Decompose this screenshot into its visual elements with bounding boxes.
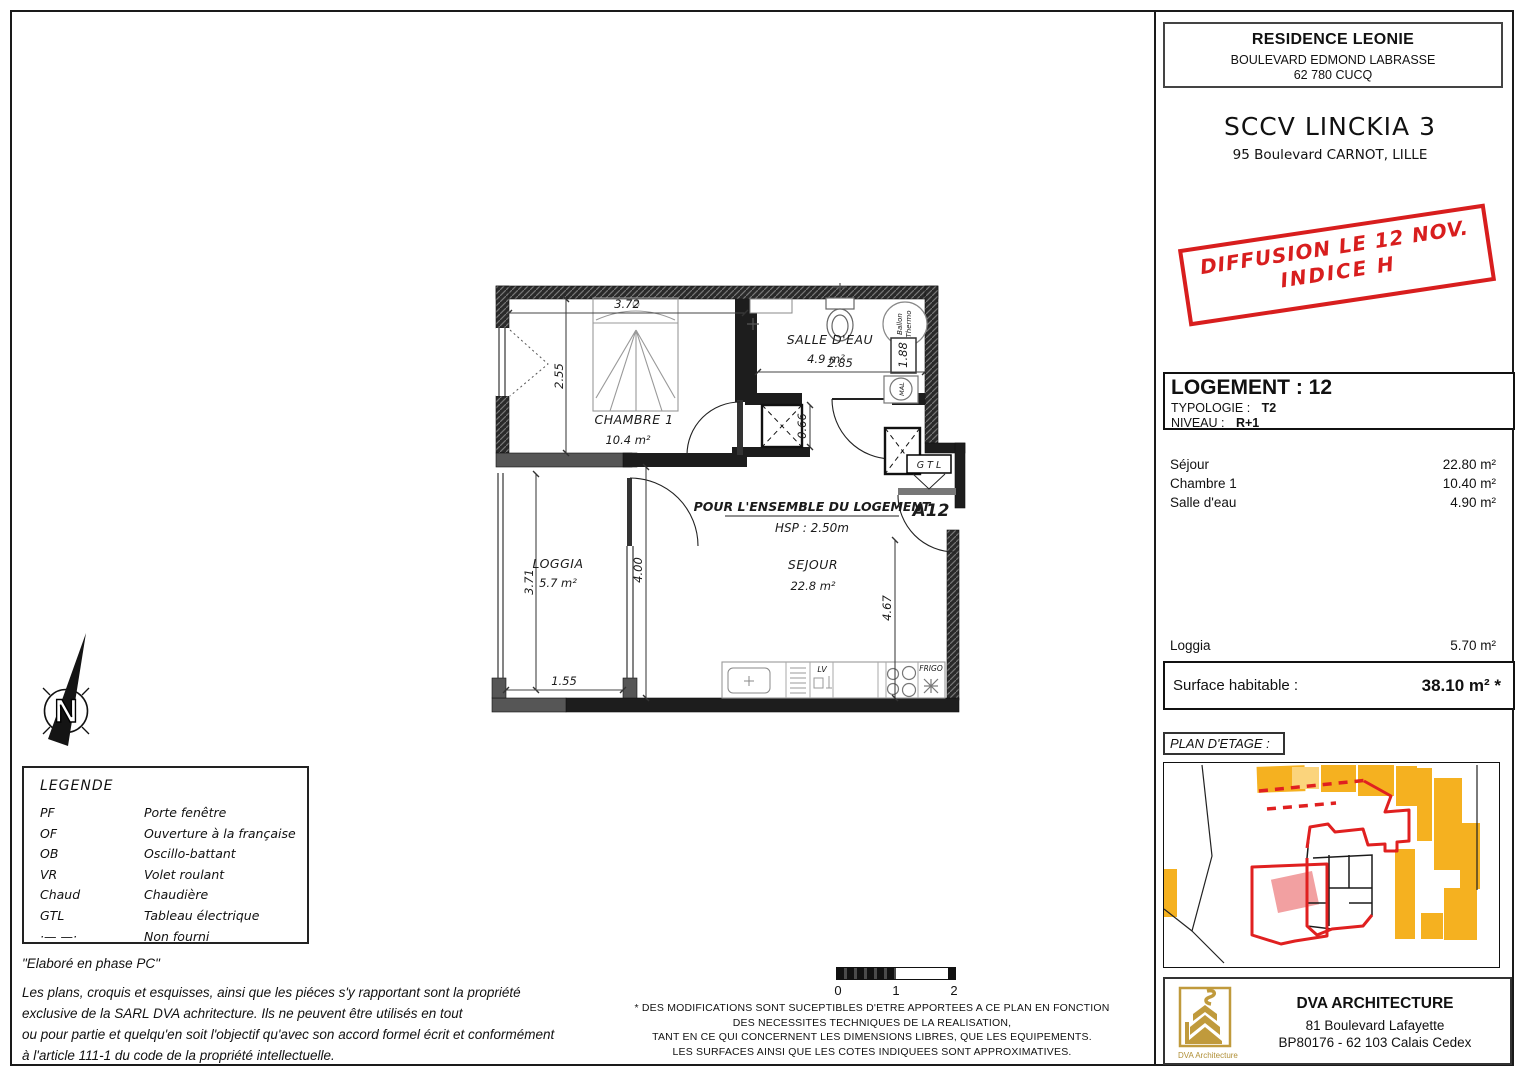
typologie-value: T2: [1262, 401, 1277, 415]
dishwasher-label: LV: [817, 665, 827, 674]
scale-tick-1: 1: [886, 983, 906, 998]
loggia-door-arc: [630, 478, 698, 546]
legend-row: GTL Tableau électrique: [24, 906, 307, 927]
room-areas-table: Séjour 22.80 m² Chambre 1 10.40 m² Salle…: [1170, 455, 1496, 512]
modifications-disclaimer: * DES MODIFICATIONS SONT SUCEPTIBLES D'E…: [612, 1001, 1132, 1059]
room-label: Chambre 1: [1170, 474, 1237, 493]
floor-location-map: [1163, 762, 1500, 968]
room-label: Séjour: [1170, 455, 1209, 474]
legend-box: LEGENDE PF Porte fenêtre OF Ouverture à …: [22, 766, 309, 944]
plan-etage-label: PLAN D'ETAGE :: [1163, 732, 1285, 755]
panel-divider: [1154, 10, 1156, 1066]
logement-title: LOGEMENT : 12: [1171, 376, 1513, 400]
table-row: Salle d'eau 4.90 m²: [1170, 493, 1496, 512]
legend-abbr: VR: [24, 865, 144, 886]
legend-label: Tableau électrique: [144, 906, 259, 927]
copyright-line: exclusive de la SARL DVA achritecture. I…: [22, 1003, 554, 1024]
svg-text:G T L: G T L: [917, 460, 942, 471]
room-area-sejour: 22.8 m²: [790, 579, 835, 593]
residence-name: RESIDENCE LEONIE: [1165, 31, 1501, 49]
legend-label: Oscillo-battant: [144, 844, 236, 865]
scale-bar-empty: [896, 968, 948, 979]
room-label: Loggia: [1170, 638, 1211, 653]
architect-address-1: 81 Boulevard Lafayette: [1249, 1018, 1501, 1033]
loggia-area-row: Loggia 5.70 m²: [1170, 638, 1496, 653]
svg-text:MAL: MAL: [898, 382, 906, 396]
developer-address: 95 Boulevard CARNOT, LILLE: [1156, 147, 1504, 163]
legend-row: VR Volet roulant: [24, 865, 307, 886]
developer-name: SCCV LINCKIA 3: [1156, 112, 1504, 141]
room-area: 4.90 m²: [1450, 493, 1496, 512]
copyright-line: à l'article 111-1 du code de la propriét…: [22, 1045, 554, 1066]
residence-title-block: RESIDENCE LEONIE BOULEVARD EDMOND LABRAS…: [1163, 22, 1503, 88]
room-area: 22.80 m²: [1443, 455, 1496, 474]
scale-tick-2: 2: [944, 983, 964, 998]
legend-row: PF Porte fenêtre: [24, 803, 307, 824]
svg-text:2.55: 2.55: [552, 363, 566, 389]
room-area-chambre: 10.4 m²: [605, 433, 650, 447]
entry-door-leaf: [898, 488, 956, 495]
legend-title: LEGENDE: [40, 778, 307, 794]
room-area-salle-eau: 4.9 m²: [807, 352, 845, 366]
floorplan-svg: Ballon Thermo 1.88 MAL G T L: [488, 278, 973, 723]
room-label: Salle d'eau: [1170, 493, 1236, 512]
surface-habitable-box: Surface habitable : 38.10 m² *: [1163, 661, 1515, 710]
legend-abbr: OF: [24, 824, 144, 845]
chambre-window: [496, 328, 548, 396]
room-label-chambre: CHAMBRE 1: [594, 412, 673, 427]
disclaimer-line: DES NECESSITES TECHNIQUES DE LA REALISAT…: [612, 1016, 1132, 1031]
legend-abbr: GTL: [24, 906, 144, 927]
plan-notes: POUR L'ENSEMBLE DU LOGEMENT HSP : 2.50m …: [694, 499, 950, 535]
chambre-door-leaf: [737, 400, 743, 455]
surface-label: Surface habitable :: [1173, 677, 1298, 694]
svg-text:4.67: 4.67: [880, 595, 894, 621]
residence-address-1: BOULEVARD EDMOND LABRASSE: [1165, 53, 1501, 67]
bed-icon: [593, 298, 678, 411]
disclaimer-line: * DES MODIFICATIONS SONT SUCEPTIBLES D'E…: [612, 1001, 1132, 1016]
legend-abbr: Chaud: [24, 885, 144, 906]
unit-door-label: A12: [911, 501, 950, 521]
scale-bar: [836, 967, 956, 980]
typologie-label: TYPOLOGIE :: [1171, 401, 1250, 415]
dva-logo-caption: DVA Architecture: [1178, 1051, 1238, 1060]
svg-text:3.71: 3.71: [522, 569, 536, 595]
scale-tick-0: 0: [828, 983, 848, 998]
room-area-loggia: 5.7 m²: [539, 576, 577, 590]
legend-label: Porte fenêtre: [144, 803, 226, 824]
north-compass-icon: N: [28, 630, 148, 755]
legend-row: ·— —· Non fourni: [24, 927, 307, 948]
room-area: 5.70 m²: [1450, 638, 1496, 653]
dimension-lines: 3.72 2.55 2.85 0.66 4.00 4.67 3.71 1.55: [506, 297, 925, 698]
duct-shafts: [762, 405, 920, 474]
room-label-loggia: LOGGIA: [532, 556, 583, 571]
logement-block: LOGEMENT : 12 TYPOLOGIE : T2 NIVEAU : R+…: [1163, 372, 1515, 430]
svg-text:FRIGO: FRIGO: [919, 664, 943, 673]
bath-door-arc: [832, 399, 892, 459]
svg-text:Ballon: Ballon: [896, 313, 904, 335]
architect-contact: DVA ARCHITECTURE 81 Boulevard Lafayette …: [1249, 995, 1501, 1050]
kitchen-counter: LV FRIGO: [722, 662, 945, 698]
washing-machine-icon: MAL: [884, 376, 918, 403]
shower-dim-box: 1.88: [891, 338, 916, 373]
legend-abbr: OB: [24, 844, 144, 865]
legend-label: Ouverture à la française: [144, 824, 296, 845]
legend-label: Chaudière: [144, 885, 208, 906]
room-label-salle-eau: SALLE D'EAU: [787, 332, 873, 347]
architect-address-2: BP80176 - 62 103 Calais Cedex: [1249, 1035, 1501, 1050]
loggia-door-leaf: [627, 478, 632, 546]
niveau-row: NIVEAU : R+1: [1171, 416, 1513, 430]
surface-value: 38.10 m² *: [1422, 676, 1501, 696]
scale-bar-filled: [837, 968, 896, 979]
niveau-label: NIVEAU :: [1171, 416, 1225, 430]
legend-row: OF Ouverture à la française: [24, 824, 307, 845]
legend-row: Chaud Chaudière: [24, 885, 307, 906]
table-row: Séjour 22.80 m²: [1170, 455, 1496, 474]
location-map-svg: [1164, 763, 1498, 966]
svg-text:4.00: 4.00: [631, 557, 645, 583]
disclaimer-line: TANT EN CE QUI CONCERNENT LES DIMENSIONS…: [612, 1030, 1132, 1045]
niveau-value: R+1: [1236, 416, 1259, 430]
architect-block: DVA Architecture DVA ARCHITECTURE 81 Bou…: [1163, 977, 1512, 1065]
legend-abbr: ·— —·: [24, 927, 144, 948]
room-label-sejour: SEJOUR: [788, 557, 838, 572]
copyright-line: Les plans, croquis et esquisses, ainsi q…: [22, 982, 554, 1003]
typologie-row: TYPOLOGIE : T2: [1171, 401, 1513, 415]
plan-sheet: RESIDENCE LEONIE BOULEVARD EDMOND LABRAS…: [0, 0, 1526, 1080]
svg-text:0.66: 0.66: [795, 413, 809, 439]
room-area: 10.40 m²: [1443, 474, 1496, 493]
svg-text:3.72: 3.72: [614, 297, 640, 311]
svg-text:Thermo: Thermo: [905, 311, 913, 338]
residence-address-2: 62 780 CUCQ: [1165, 68, 1501, 82]
gtl-box: G T L: [907, 455, 951, 489]
legend-row: OB Oscillo-battant: [24, 844, 307, 865]
copyright-notes: "Elaboré en phase PC" Les plans, croquis…: [22, 956, 554, 1066]
svg-text:1.55: 1.55: [551, 674, 577, 688]
legend-label: Volet roulant: [144, 865, 224, 886]
svg-text:1.88: 1.88: [896, 342, 910, 368]
legend-label: Non fourni: [144, 927, 209, 948]
hsp-note-value: HSP : 2.50m: [775, 521, 849, 535]
phase-note: "Elaboré en phase PC": [22, 956, 554, 971]
table-row: Chambre 1 10.40 m²: [1170, 474, 1496, 493]
hsp-note-title: POUR L'ENSEMBLE DU LOGEMENT: [694, 499, 932, 514]
legend-abbr: PF: [24, 803, 144, 824]
copyright-line: ou pour partie et quelqu'en soit l'objec…: [22, 1024, 554, 1045]
dva-logo-icon: DVA Architecture: [1177, 984, 1241, 1064]
architect-name: DVA ARCHITECTURE: [1249, 995, 1501, 1013]
scale-bar-cap: [948, 968, 955, 979]
disclaimer-line: LES SURFACES AINSI QUE LES COTES INDIQUE…: [612, 1045, 1132, 1060]
compass-north-letter: N: [54, 693, 77, 729]
